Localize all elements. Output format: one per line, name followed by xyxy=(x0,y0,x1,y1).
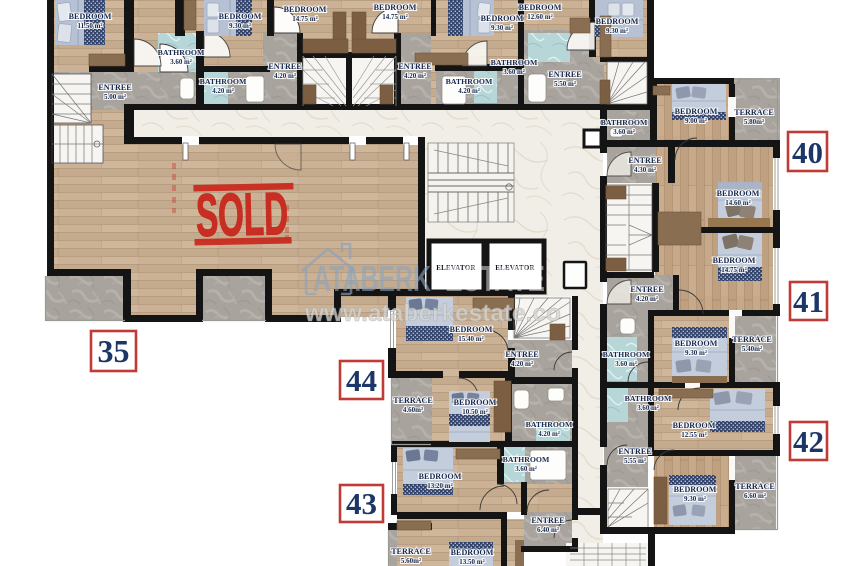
svg-text:BEDROOM: BEDROOM xyxy=(374,3,417,12)
svg-text:4.20 m²: 4.20 m² xyxy=(636,295,658,303)
svg-text:BEDROOM: BEDROOM xyxy=(675,107,718,116)
svg-text:BEDROOM: BEDROOM xyxy=(69,12,112,21)
svg-text:15.40 m²: 15.40 m² xyxy=(458,335,483,343)
svg-text:3.60 m²: 3.60 m² xyxy=(637,405,659,412)
svg-text:4.30 m²: 4.30 m² xyxy=(634,166,656,174)
svg-text:BEDROOM: BEDROOM xyxy=(717,189,760,198)
svg-text:42: 42 xyxy=(793,424,824,459)
svg-text:ENTREE: ENTREE xyxy=(548,70,581,79)
svg-text:ENTREE: ENTREE xyxy=(268,62,301,71)
svg-text:BEDROOM: BEDROOM xyxy=(284,5,327,14)
svg-text:3.60 m²: 3.60 m² xyxy=(503,69,525,76)
svg-text:6.40 m²: 6.40 m² xyxy=(537,526,559,534)
svg-text:4.20 m²: 4.20 m² xyxy=(274,72,296,80)
svg-text:9.30 m²: 9.30 m² xyxy=(684,495,706,503)
svg-text:TERRACE: TERRACE xyxy=(391,547,431,556)
svg-text:3.60 m²: 3.60 m² xyxy=(613,129,635,136)
svg-text:12.60 m²: 12.60 m² xyxy=(527,13,552,21)
svg-text:TERRACE: TERRACE xyxy=(732,335,772,344)
svg-text:www.ataberkestate.co: www.ataberkestate.co xyxy=(304,300,561,327)
svg-text:9.30 m²: 9.30 m² xyxy=(685,349,707,357)
svg-text:41: 41 xyxy=(793,284,824,319)
svg-text:BATHROOM: BATHROOM xyxy=(446,77,493,86)
svg-text:5.55 m²: 5.55 m² xyxy=(624,457,646,465)
svg-text:TERRACE: TERRACE xyxy=(735,482,775,491)
svg-text:9.30 m²: 9.30 m² xyxy=(491,24,513,32)
svg-text:3.60 m²: 3.60 m² xyxy=(170,59,192,66)
svg-text:4.60m²: 4.60m² xyxy=(403,406,423,414)
svg-text:BATHROOM: BATHROOM xyxy=(200,77,247,86)
svg-text:44: 44 xyxy=(346,363,377,398)
svg-text:14.75 m²: 14.75 m² xyxy=(721,266,746,274)
svg-text:5.00 m²: 5.00 m² xyxy=(104,93,126,101)
svg-text:6.60 m²: 6.60 m² xyxy=(744,492,766,500)
svg-text:BEDROOM: BEDROOM xyxy=(675,339,718,348)
svg-text:ESTATE: ESTATE xyxy=(445,258,545,299)
svg-text:ENTREE: ENTREE xyxy=(628,156,661,165)
svg-text:4.20 m²: 4.20 m² xyxy=(404,72,426,80)
svg-text:5.50 m²: 5.50 m² xyxy=(554,80,576,88)
svg-text:4.20 m²: 4.20 m² xyxy=(538,431,560,438)
svg-text:BATHROOM: BATHROOM xyxy=(625,394,672,403)
svg-text:BATHROOM: BATHROOM xyxy=(503,455,550,464)
svg-text:12.55 m²: 12.55 m² xyxy=(681,431,706,439)
svg-text:10.50 m²: 10.50 m² xyxy=(462,408,487,416)
svg-text:BATHROOM: BATHROOM xyxy=(526,420,573,429)
svg-text:9.30 m²: 9.30 m² xyxy=(229,22,251,30)
svg-text:ENTREE: ENTREE xyxy=(531,516,564,525)
svg-text:BEDROOM: BEDROOM xyxy=(596,17,639,26)
svg-text:14.75 m²: 14.75 m² xyxy=(382,13,407,21)
svg-text:4.20 m²: 4.20 m² xyxy=(458,88,480,95)
svg-text:14.75 m²: 14.75 m² xyxy=(292,15,317,23)
svg-text:11.50 m²: 11.50 m² xyxy=(77,22,102,30)
svg-text:BEDROOM: BEDROOM xyxy=(674,485,717,494)
svg-text:35: 35 xyxy=(98,333,130,369)
svg-text:5.60m²: 5.60m² xyxy=(401,557,421,565)
svg-text:BEDROOM: BEDROOM xyxy=(219,12,262,21)
svg-text:BATHROOM: BATHROOM xyxy=(601,118,648,127)
svg-text:BEDROOM: BEDROOM xyxy=(519,3,562,12)
svg-text:3.60 m²: 3.60 m² xyxy=(515,466,537,473)
svg-text:BEDROOM: BEDROOM xyxy=(673,421,716,430)
svg-text:43: 43 xyxy=(346,486,377,521)
svg-text:ENTREE: ENTREE xyxy=(630,285,663,294)
svg-text:9.30 m²: 9.30 m² xyxy=(606,27,628,35)
svg-text:ATABERK: ATABERK xyxy=(313,258,431,299)
svg-text:TERRACE: TERRACE xyxy=(734,108,774,117)
svg-text:14.60 m²: 14.60 m² xyxy=(725,199,750,207)
svg-text:4.20 m²: 4.20 m² xyxy=(212,88,234,95)
svg-text:BEDROOM: BEDROOM xyxy=(419,472,462,481)
svg-text:ENTREE: ENTREE xyxy=(398,62,431,71)
svg-text:BEDROOM: BEDROOM xyxy=(713,256,756,265)
svg-text:5.40m²: 5.40m² xyxy=(742,345,762,353)
svg-text:BEDROOM: BEDROOM xyxy=(451,548,494,557)
svg-text:BATHROOM: BATHROOM xyxy=(491,58,538,67)
svg-text:BATHROOM: BATHROOM xyxy=(603,350,650,359)
svg-text:ENTREE: ENTREE xyxy=(98,83,131,92)
svg-text:TERRACE: TERRACE xyxy=(393,396,433,405)
svg-text:3.60 m²: 3.60 m² xyxy=(615,361,637,368)
svg-text:BEDROOM: BEDROOM xyxy=(481,14,524,23)
svg-text:BATHROOM: BATHROOM xyxy=(158,48,205,57)
svg-text:13.50 m²: 13.50 m² xyxy=(459,558,484,566)
svg-text:ENTREE: ENTREE xyxy=(505,350,538,359)
svg-text:40: 40 xyxy=(792,135,823,170)
svg-text:ENTREE: ENTREE xyxy=(618,447,651,456)
svg-text:13.20 m²: 13.20 m² xyxy=(427,482,452,490)
svg-text:4.20 m²: 4.20 m² xyxy=(511,360,533,368)
svg-text:5.80m²: 5.80m² xyxy=(744,118,764,126)
svg-text:9.00 m²: 9.00 m² xyxy=(685,117,707,125)
svg-text:BEDROOM: BEDROOM xyxy=(454,398,497,407)
